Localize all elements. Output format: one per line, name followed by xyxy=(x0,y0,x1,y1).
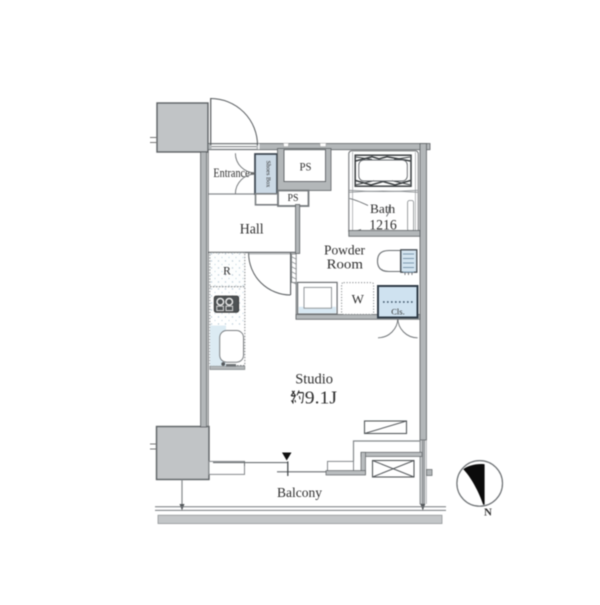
svg-text:Entrance: Entrance xyxy=(213,165,249,180)
svg-text:9.1J: 9.1J xyxy=(305,387,337,407)
svg-text:Hall: Hall xyxy=(240,221,264,237)
svg-text:Balcony: Balcony xyxy=(277,486,322,501)
svg-text:Room: Room xyxy=(327,258,363,273)
svg-text:W: W xyxy=(352,292,365,307)
svg-text:R: R xyxy=(223,266,231,278)
svg-text:Shoes Box: Shoes Box xyxy=(265,161,272,189)
svg-text:PS: PS xyxy=(288,193,299,204)
svg-text:Studio: Studio xyxy=(295,371,333,387)
svg-text:N: N xyxy=(484,507,492,519)
svg-text:Powder: Powder xyxy=(324,244,365,259)
svg-text:Bath: Bath xyxy=(370,201,396,216)
svg-text:PS: PS xyxy=(300,161,312,173)
svg-text:Cls.: Cls. xyxy=(391,307,404,317)
